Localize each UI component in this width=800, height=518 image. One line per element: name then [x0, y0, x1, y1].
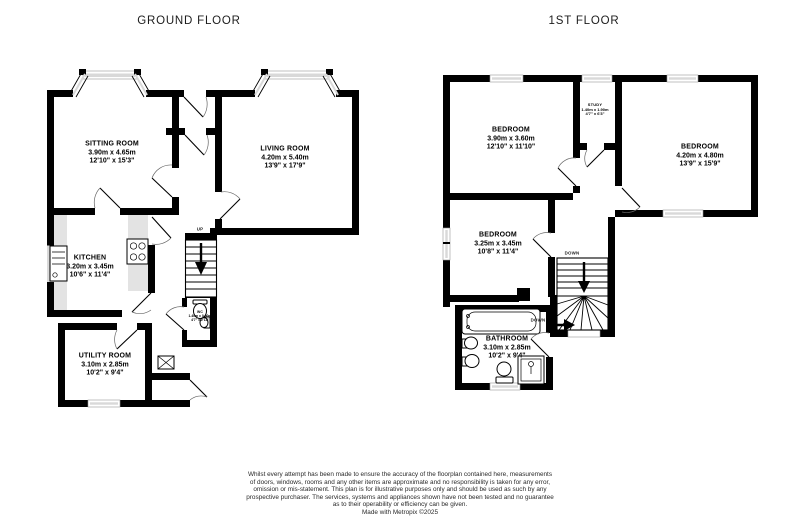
room-label-sitting-room: SITTING ROOM 3.90m x 4.65m 12'10" x 15'3… [85, 140, 139, 166]
room-label-bedroom-1: BEDROOM 3.90m x 3.60m 12'10" x 11'10" [487, 126, 536, 152]
utility-window-icon [88, 400, 120, 407]
metropix-credit: Made with Metropix ©2025 [0, 509, 800, 517]
bay-window-icon [66, 69, 154, 97]
floorplan-canvas: GROUND FLOOR 1ST FLOOR SITTING ROOM 3.90… [0, 0, 800, 518]
disclaimer-text: Whilst every attempt has been made to en… [0, 471, 800, 517]
appliance-icon [50, 246, 67, 281]
toilet-icon [496, 362, 513, 383]
basin-icon [462, 355, 479, 368]
staircase-down-icon [549, 258, 608, 331]
sink-icon [462, 337, 478, 349]
floorplan-drawing [0, 0, 800, 518]
room-label-kitchen: KITCHEN 3.20m x 3.45m 10'6" x 11'4" [66, 254, 113, 280]
room-label-utility-room: UTILITY ROOM 3.10m x 2.85m 10'2" x 9'4" [79, 352, 131, 378]
bathtub-icon [462, 309, 540, 334]
room-label-bedroom-3: BEDROOM 3.25m x 3.45m 10'8" x 11'4" [474, 231, 521, 257]
stairs-down-label-2: DOWN [531, 318, 546, 323]
first-floor-title: 1ST FLOOR [549, 15, 620, 27]
staircase-up-icon [185, 240, 217, 297]
room-label-study: STUDY 1.40m x 1.90m 4'7" x 6'3" [581, 103, 608, 117]
hob-icon [127, 239, 148, 264]
stairs-down-label-1: DOWN [565, 251, 580, 256]
room-label-bathroom: BATHROOM 3.10m x 2.85m 10'2" x 9'4" [483, 335, 530, 361]
freezer-box-icon [158, 356, 174, 369]
room-label-bedroom-2: BEDROOM 4.20m x 4.80m 13'9" x 15'9" [676, 143, 723, 169]
room-label-living-room: LIVING ROOM 4.20m x 5.40m 13'9" x 17'9" [260, 145, 309, 171]
room-label-wc: WC 1.40m x 0.90m 4'7" x 2'11" [189, 311, 212, 323]
stairs-up-label: UP [197, 227, 204, 232]
bay-window-icon [248, 69, 343, 97]
ground-floor-title: GROUND FLOOR [137, 15, 241, 27]
